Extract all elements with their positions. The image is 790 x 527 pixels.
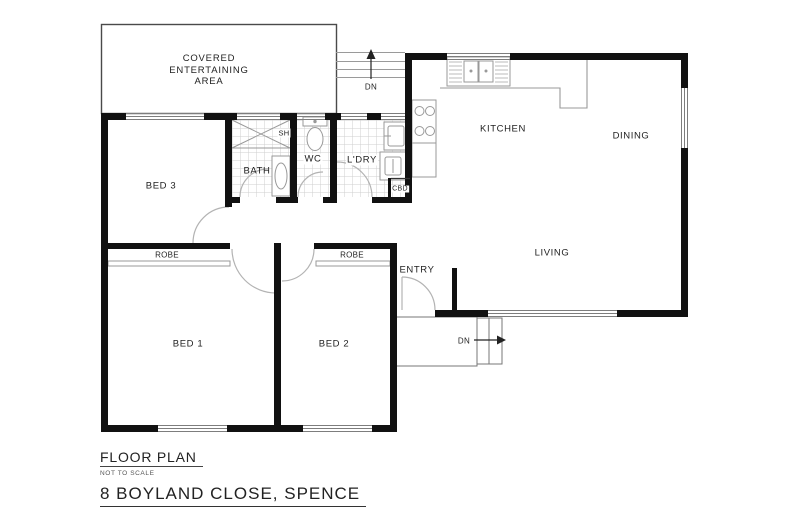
scale-note: NOT TO SCALE — [100, 470, 203, 477]
wall-wet-bottom — [276, 197, 298, 203]
wall-bottom-living — [435, 310, 488, 317]
robe-bed1-doors — [108, 261, 230, 266]
wall-hall-divider — [274, 243, 281, 249]
label-entry: ENTRY — [399, 265, 434, 276]
cooktop — [412, 100, 436, 177]
door-bed2 — [282, 249, 314, 281]
wall-left-exterior — [101, 113, 108, 432]
wall-wet-bottom — [372, 197, 412, 203]
label-robe-bed2: ROBE — [340, 251, 364, 260]
window-dining-right — [682, 88, 688, 148]
floor-plan-canvas: COVERED ENTERTAINING AREA DN BED 3 BATH … — [0, 0, 790, 527]
wall-wc-laundry — [330, 113, 337, 197]
wall-kitchen-laundry — [405, 53, 412, 203]
label-bed2: BED 2 — [319, 339, 349, 350]
window-bed1-bottom — [158, 426, 227, 432]
window-laundry-top-2 — [381, 114, 405, 120]
wall-right-exterior — [681, 53, 688, 88]
label-covered-line1: COVERED — [169, 53, 248, 65]
wall-right-exterior — [681, 148, 688, 317]
wall-top-wet — [204, 113, 237, 120]
window-living-bottom — [488, 311, 617, 317]
door-entry — [402, 277, 435, 310]
kitchen-bench-end — [412, 143, 436, 177]
label-stairs-top-dn: DN — [365, 83, 377, 92]
label-robe-bed1: ROBE — [155, 251, 179, 260]
robe-bed2-doors — [316, 261, 390, 266]
title-block: FLOOR PLAN NOT TO SCALE — [100, 449, 203, 477]
kitchen-sink — [447, 57, 510, 86]
wall-bed3-bath — [225, 113, 232, 207]
label-living: LIVING — [535, 248, 570, 259]
wall-hall-bed1 — [101, 243, 230, 249]
wall-top-bed3 — [101, 113, 126, 120]
window-laundry-top-1 — [341, 114, 367, 120]
wall-top-wet — [367, 113, 381, 120]
label-shower: SH — [277, 129, 290, 138]
washing-machine — [380, 152, 406, 180]
label-covered-line2: ENTERTAINING — [169, 64, 248, 76]
wall-bottom-exterior — [101, 425, 158, 432]
window-shower-top — [237, 114, 280, 120]
label-cupboard: CBD — [391, 186, 409, 193]
label-stairs-entry-dn: DN — [458, 337, 470, 346]
label-kitchen: KITCHEN — [480, 124, 526, 135]
window-bed3-top — [126, 114, 204, 120]
wall-bottom-living — [617, 310, 688, 317]
wall-wet-bottom — [323, 197, 337, 203]
window-bed2-bottom — [303, 426, 372, 432]
label-bed1: BED 1 — [173, 339, 203, 350]
wall-bed1-bed2 — [274, 249, 281, 425]
label-laundry: L'DRY — [346, 155, 378, 166]
wall-bed2-entry — [390, 243, 397, 432]
door-bed1 — [232, 249, 276, 293]
label-covered-line3: AREA — [169, 76, 248, 88]
label-bed3: BED 3 — [146, 181, 176, 192]
vanity-basin — [272, 156, 290, 196]
wall-bath-wc — [290, 113, 297, 197]
wall-wet-bottom — [225, 197, 240, 203]
laundry-tub — [384, 122, 408, 150]
label-covered-entertaining-area: COVERED ENTERTAINING AREA — [169, 53, 248, 88]
address-title: 8 BOYLAND CLOSE, SPENCE — [100, 484, 366, 507]
label-dining: DINING — [613, 131, 650, 142]
wall-entry-stub — [452, 268, 457, 310]
label-wc: WC — [303, 154, 322, 165]
floor-plan-drawing — [0, 0, 790, 527]
wall-hall-bed2 — [314, 243, 397, 249]
wall-top-dining — [510, 53, 688, 60]
label-bath: BATH — [243, 166, 270, 177]
plan-title: FLOOR PLAN — [100, 449, 203, 467]
wall-bottom-exterior — [227, 425, 303, 432]
stairs-top-direction-arrow-icon — [367, 49, 376, 79]
door-bed3 — [193, 207, 229, 243]
